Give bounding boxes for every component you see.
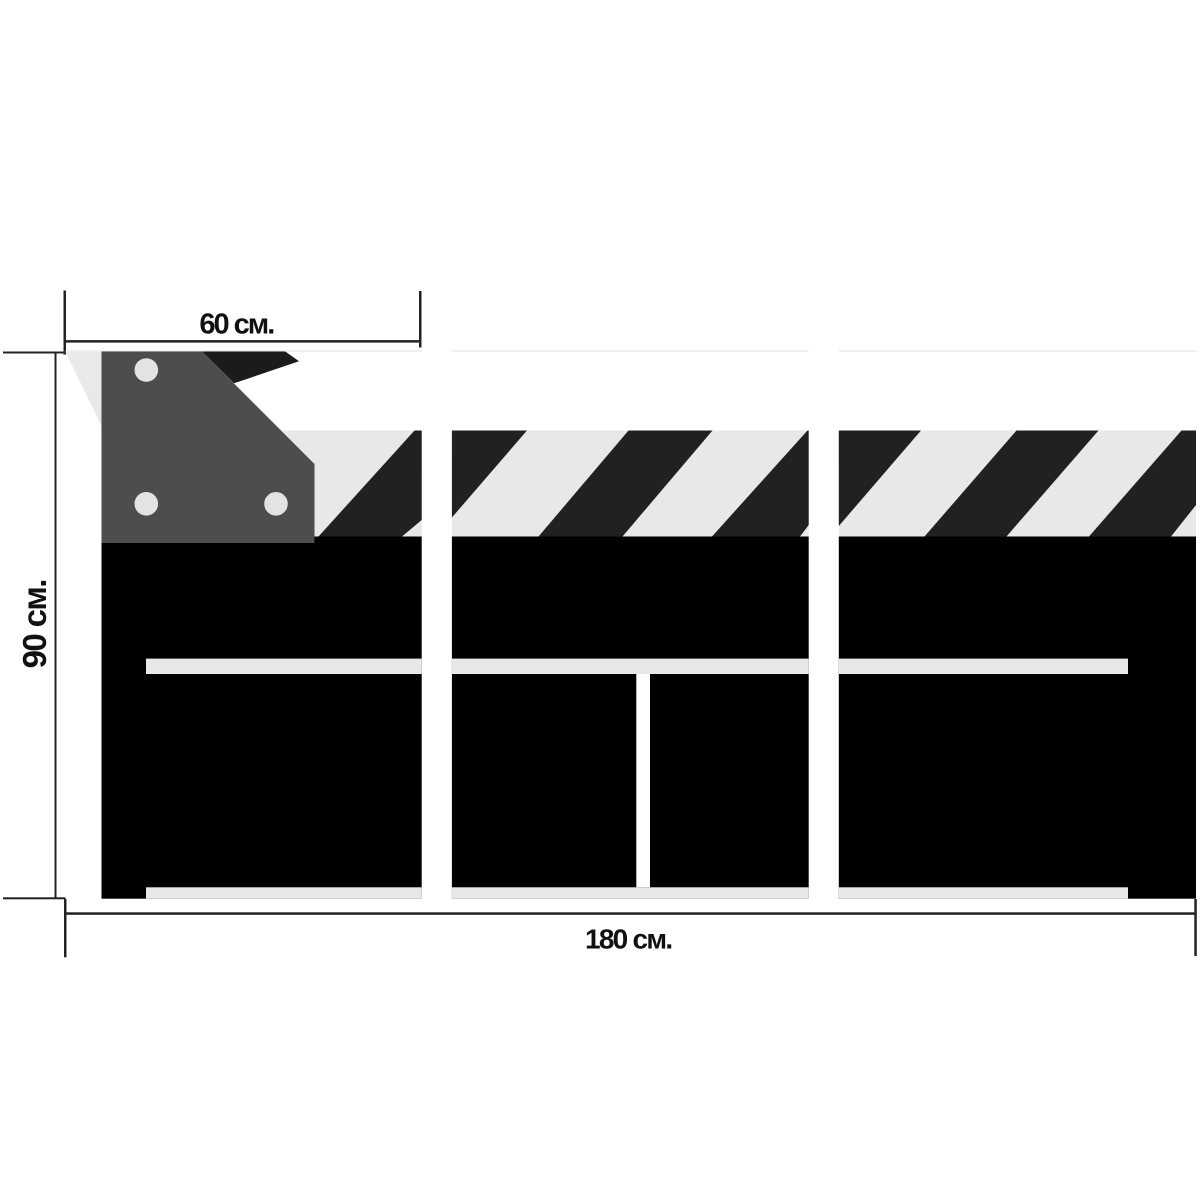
svg-text:180 см.: 180 см. [585, 924, 671, 955]
svg-text:90 см.: 90 см. [16, 580, 53, 668]
svg-text:60 см.: 60 см. [199, 309, 274, 341]
